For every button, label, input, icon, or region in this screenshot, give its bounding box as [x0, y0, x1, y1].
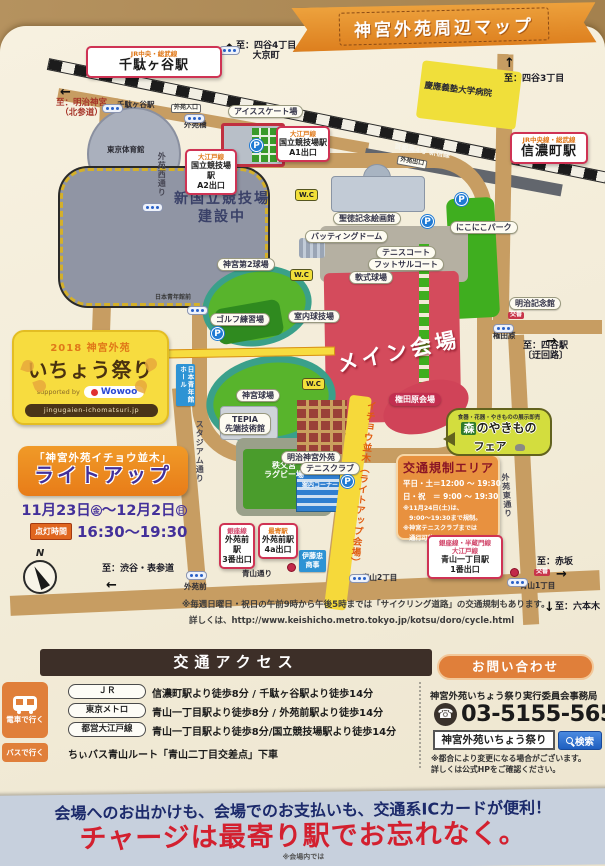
to-meiji-jingu: 至：明治神宮 （北参道）	[56, 99, 107, 119]
jr-access-desc: 信濃町駅より徒歩8分 / 千駄ヶ谷駅より徒歩14分	[152, 685, 373, 700]
go-by-bus-label: バスで行く	[6, 747, 44, 758]
station-exit-marker	[510, 568, 519, 577]
aoyama-dori-label: 青山通り	[242, 570, 272, 579]
station-dot	[188, 117, 192, 121]
to-shibuya-omotesando: 至：渋谷・表参道	[102, 564, 174, 574]
fair-name-rest: のやきもの	[476, 421, 536, 435]
station-exit-marker	[287, 563, 296, 572]
station-dot	[190, 574, 194, 578]
lightup-date-end: 12月2日	[116, 503, 175, 519]
station-dot	[106, 107, 110, 111]
shinanomachi-station-box-line: JR中央線・総武線	[513, 136, 585, 144]
contact-section-header: お問い合わせ	[437, 654, 594, 680]
station-dot	[228, 49, 232, 53]
arrow-to-meiji-jingu: ←	[60, 85, 71, 100]
regulation-weekday-hours: 平日・土＝12:00 ～ 19:30	[403, 478, 493, 489]
contact-note-1: ※都合により変更になる場合がございます。	[431, 753, 586, 764]
parking-icon: P	[211, 327, 224, 340]
indoor-gym-label: 室内球技場	[288, 310, 340, 323]
station-marker	[184, 114, 205, 123]
gaienmae-label: 外苑前	[184, 583, 207, 592]
sendagaya-station-box: JR中央・総武線千駄ヶ谷駅	[86, 46, 222, 78]
station-dot	[111, 107, 115, 111]
aoyama-itchome-box-line: 1番出口	[430, 565, 500, 575]
search-button: 検索	[558, 731, 602, 750]
go-by-train-label: 電車で行く	[6, 714, 44, 725]
station-dot	[195, 574, 199, 578]
gaienmae-exit4a-box-line: 最寄駅	[261, 527, 295, 535]
annai-corner-label: 案内コーナー	[302, 483, 338, 490]
tokyo-metro-badge: 東京メトロ	[68, 703, 146, 718]
lightup-day-end: 日	[176, 505, 187, 516]
station-marker	[493, 324, 514, 333]
kokuritsu-a2-box: 大江戸線国立競技場駅A2出口	[185, 149, 237, 195]
gaienmae-exit3-box-line: 銀座線	[222, 527, 252, 535]
access-divider	[419, 682, 421, 768]
parking-icon: P	[341, 475, 354, 488]
jingu-2nd-stadium-label: 神宮第2球場	[217, 258, 275, 271]
station-marker	[186, 571, 207, 580]
gaienmae-exit4a-box: 最寄駅外苑前駅4a出口	[258, 523, 298, 559]
station-dot	[233, 49, 237, 53]
toei-oedo-badge: 都営大江戸線	[68, 722, 146, 737]
traffic-regulation-card: 交通規制エリア 平日・土＝12:00 ～ 19:30 日・祝 ＝ 9:00 ～ …	[396, 454, 500, 540]
kokuritsu-a1-box: 大江戸線国立競技場駅A1出口	[276, 126, 330, 162]
meiji-kinenkan-label: 明治記念館	[509, 297, 561, 310]
station-dot	[353, 577, 357, 581]
regulation-note-3: ※神宮テニスクラブまでは	[403, 523, 493, 532]
koban-tag-2: 交番	[534, 569, 550, 576]
compass-needle	[30, 564, 50, 590]
tokyo-metro-access-desc: 青山一丁目駅より徒歩8分 / 外苑前駅より徒歩14分	[152, 704, 383, 719]
station-dot	[223, 49, 227, 53]
arrow-to-yotsuya-3chome: ↑	[504, 56, 515, 71]
gaienmae-exit4a-box-line: 4a出口	[261, 545, 295, 555]
go-by-bus-block: バスで行く	[2, 743, 48, 762]
gaien-exit-tag: 外苑出口	[396, 155, 427, 169]
station-dot	[521, 581, 525, 585]
station-dot	[358, 577, 362, 581]
phone-icon: ☎	[434, 703, 457, 726]
station-dot	[497, 327, 501, 331]
lightup-title-line2: ライトアップ	[18, 465, 188, 485]
kokuritsu-a1-box-line: 国立競技場駅	[279, 138, 327, 148]
parking-icon: P	[455, 193, 468, 206]
fair-name-prefix: 森	[461, 422, 476, 435]
station-dot	[363, 577, 367, 581]
toilet-sign: W.C	[295, 189, 318, 201]
ic-card-banner: 会場へのお出かけも、会場でのお支払いも、交通系ICカードが便利！ チャージは最寄…	[0, 788, 605, 866]
aoyama-itchome-box: 銀座線・半蔵門線大江戸線青山一丁目駅1番出口	[427, 535, 503, 579]
compass-north-label: N	[20, 548, 60, 559]
station-marker	[142, 203, 163, 212]
compass: N	[20, 548, 60, 598]
jingu-stadium-label: 神宮球場	[236, 389, 280, 402]
kokuritsu-a2-box-line: 国立競技場駅	[188, 161, 234, 181]
to-yotsuya-3chome: 至：四谷3丁目	[504, 74, 564, 84]
fair-tagline: 食器・花器・やきものの展示即売	[448, 413, 550, 421]
parking-icon: P	[421, 215, 434, 228]
photo-background: 神宮外苑周辺マップ 2018 神宮外苑 いちょう祭り supported by …	[0, 0, 605, 866]
compass-dial	[23, 560, 57, 594]
gaien-entrance-tag: 外苑入口	[171, 104, 201, 113]
futsal-court-label: フットサルコート	[368, 258, 444, 271]
kokuritsu-a1-box-line: A1出口	[279, 148, 327, 158]
pottery-icon	[515, 444, 525, 451]
station-dot	[516, 581, 520, 585]
jr-badge: ＪＲ	[68, 684, 146, 699]
itochu-label: 伊藤忠 商事	[299, 550, 326, 572]
koban-tag-1: 交番	[508, 312, 524, 319]
aoyama-itchome-box-line: 銀座線・半蔵門線	[430, 539, 500, 547]
tokyo-gym-label: 東京体育館	[107, 146, 145, 155]
arrow-to-yotsuya-station: →	[546, 334, 557, 349]
station-dot	[116, 107, 120, 111]
gaien-higashi-street-label: 外苑東通り	[501, 473, 515, 543]
ice-skate-label: アイススケート場	[228, 105, 303, 118]
new-stadium-label: 新国立競技場 建設中	[152, 190, 292, 226]
parking-icon: P	[250, 139, 263, 152]
fair-name: 森のやきもの	[448, 421, 550, 435]
arrow-to-shibuya: ←	[106, 578, 117, 593]
station-marker	[219, 46, 240, 55]
pottery-fair-bubble: 食器・花器・やきものの展示即売 森のやきもの フェア	[446, 408, 552, 456]
station-dot	[502, 327, 506, 331]
search-icon	[566, 737, 573, 744]
nikoniko-park-label: にこにこパーク	[450, 221, 518, 234]
festival-year: 2018 神宮外苑	[14, 339, 167, 354]
icho-namiki-label: イチョウ並木（ライトアップ会場）	[344, 400, 376, 600]
station-dot	[507, 327, 511, 331]
train-icon	[13, 696, 37, 711]
cycle-note-line1: ※毎週日曜日・祝日の午前9時から午後5時までは「サイクリング道路」の交通規制もあ…	[182, 601, 550, 611]
regulation-holiday-hours: 日・祝 ＝ 9:00 ～ 19:30	[403, 491, 493, 502]
sponsor-logo-mark	[91, 389, 98, 396]
sendagaya-station-box-line: 千駄ヶ谷駅	[89, 58, 219, 74]
shinanomachi-station-box-line: 信濃町駅	[513, 144, 585, 160]
station-dot	[156, 206, 160, 210]
sendagaya-station-box-line: JR中央・総武線	[89, 50, 219, 58]
arrow-to-roppongi: ↓	[544, 600, 555, 615]
to-yotsuya-4chome: 至：四谷4丁目 大京町	[236, 41, 296, 62]
kokuritsu-a1-box-line: 大江戸線	[279, 130, 327, 138]
station-dot	[200, 574, 204, 578]
batting-dome-label: バッティングドーム	[305, 230, 388, 243]
keio-hospital-label: 慶應義塾大学病院	[424, 82, 493, 100]
station-dot	[193, 117, 197, 121]
toei-oedo-access-desc: 青山一丁目駅より徒歩8分/国立競技場駅より徒歩14分	[152, 723, 396, 738]
search-button-label: 検索	[575, 734, 594, 748]
lightup-time-label: 点灯時間	[30, 523, 72, 540]
station-marker	[507, 578, 528, 587]
station-marker	[187, 306, 208, 315]
regulation-title: 交通規制エリア	[403, 459, 493, 476]
toilet-sign: W.C	[302, 378, 325, 390]
aoyama-itchome-box-line: 青山一丁目駅	[430, 555, 500, 565]
seinenkan-hall-label: 日本青年館 ホール	[176, 364, 195, 406]
toilet-sign: W.C	[290, 269, 313, 281]
festival-card: 2018 神宮外苑 いちょう祭り supported by Wowoo jing…	[12, 330, 169, 425]
lightup-date-tilde: ～	[102, 503, 117, 519]
lightup-card: 「神宮外苑イチョウ並木」 ライトアップ	[18, 446, 188, 496]
to-roppongi: 至：六本木	[555, 602, 600, 612]
stadium-street-label: スタジアム通り	[195, 420, 204, 490]
regulation-note-2: 9:00～19:30まで規制。	[403, 513, 493, 522]
gaienmae-exit3-box-line: 3番出口	[222, 555, 252, 565]
kokuritsu-a2-box-line: A2出口	[188, 181, 234, 191]
go-by-train-block: 電車で行く	[2, 682, 48, 738]
station-dot	[146, 206, 150, 210]
lightup-date-start: 11月23日	[21, 503, 90, 519]
soft-field-label: 軟式球場	[349, 271, 393, 284]
tennis-club-label: テニスクラブ	[300, 462, 360, 475]
gaienmae-exit3-box: 銀座線外苑前駅3番出口	[219, 523, 255, 569]
arrow-to-akasaka: →	[556, 567, 567, 582]
station-dot	[198, 117, 202, 121]
gaienmae-exit3-box-line: 外苑前駅	[222, 535, 252, 555]
festival-url-ribbon: jingugaien-ichomatsuri.jp	[25, 404, 158, 417]
festival-title: いちょう祭り	[14, 354, 167, 383]
contact-phone-number: 03-5155-5658	[461, 701, 605, 727]
gondawara-venue-label: 権田原会場	[389, 393, 441, 406]
sponsor-name: Wowoo	[101, 387, 137, 397]
station-dot	[511, 581, 515, 585]
station-dot	[151, 206, 155, 210]
station-dot	[191, 309, 195, 313]
kokuritsu-a2-box-line: 大江戸線	[188, 153, 234, 161]
sendagaya-sub-label: 千駄ヶ谷駅	[117, 101, 155, 110]
to-akasaka: 至：赤坂	[537, 557, 573, 567]
seinenkan-mae-label: 日本青年館前	[155, 295, 191, 302]
cycle-note-line2: 詳しくは、http://www.keishicho.metro.tokyo.jp…	[189, 617, 514, 627]
contact-office-name: 神宮外苑いちょう祭り実行委員会事務局	[430, 688, 597, 702]
station-dot	[196, 309, 200, 313]
bus-access-desc: ちぃバス青山ルート「青山二丁目交差点」下車	[68, 746, 278, 761]
main-venue-label: メイン会場	[335, 327, 462, 377]
access-section-header: 交通アクセス	[40, 649, 432, 676]
shinanomachi-station-box: JR中央線・総武線信濃町駅	[510, 132, 588, 164]
station-dot	[201, 309, 205, 313]
lightup-time-row: 点灯時間 16:30～19:30	[30, 521, 188, 542]
contact-note-2: 詳しくは公式HPをご確認ください。	[431, 764, 560, 775]
gondawara-stop-label: 権田原	[493, 332, 516, 341]
regulation-note-1: ※11月24日(土)は、	[403, 503, 493, 512]
lightup-dates: 11月23日金～12月2日日	[14, 499, 194, 520]
golf-range-label: ゴルフ練習場	[210, 313, 270, 326]
seitoku-gallery-label: 聖徳記念絵画館	[333, 212, 401, 225]
fair-name-suffix: フェア	[473, 440, 506, 453]
search-keyword-box: 神宮外苑いちょう祭り	[433, 730, 555, 750]
station-marker	[349, 574, 370, 583]
gaienmae-exit4a-box-line: 外苑前駅	[261, 535, 295, 545]
lightup-day-start: 金	[91, 505, 102, 516]
tepia-label: TEPIA 先端技術館	[219, 413, 271, 435]
station-marker	[102, 104, 123, 113]
lightup-time-value: 16:30～19:30	[77, 521, 188, 542]
